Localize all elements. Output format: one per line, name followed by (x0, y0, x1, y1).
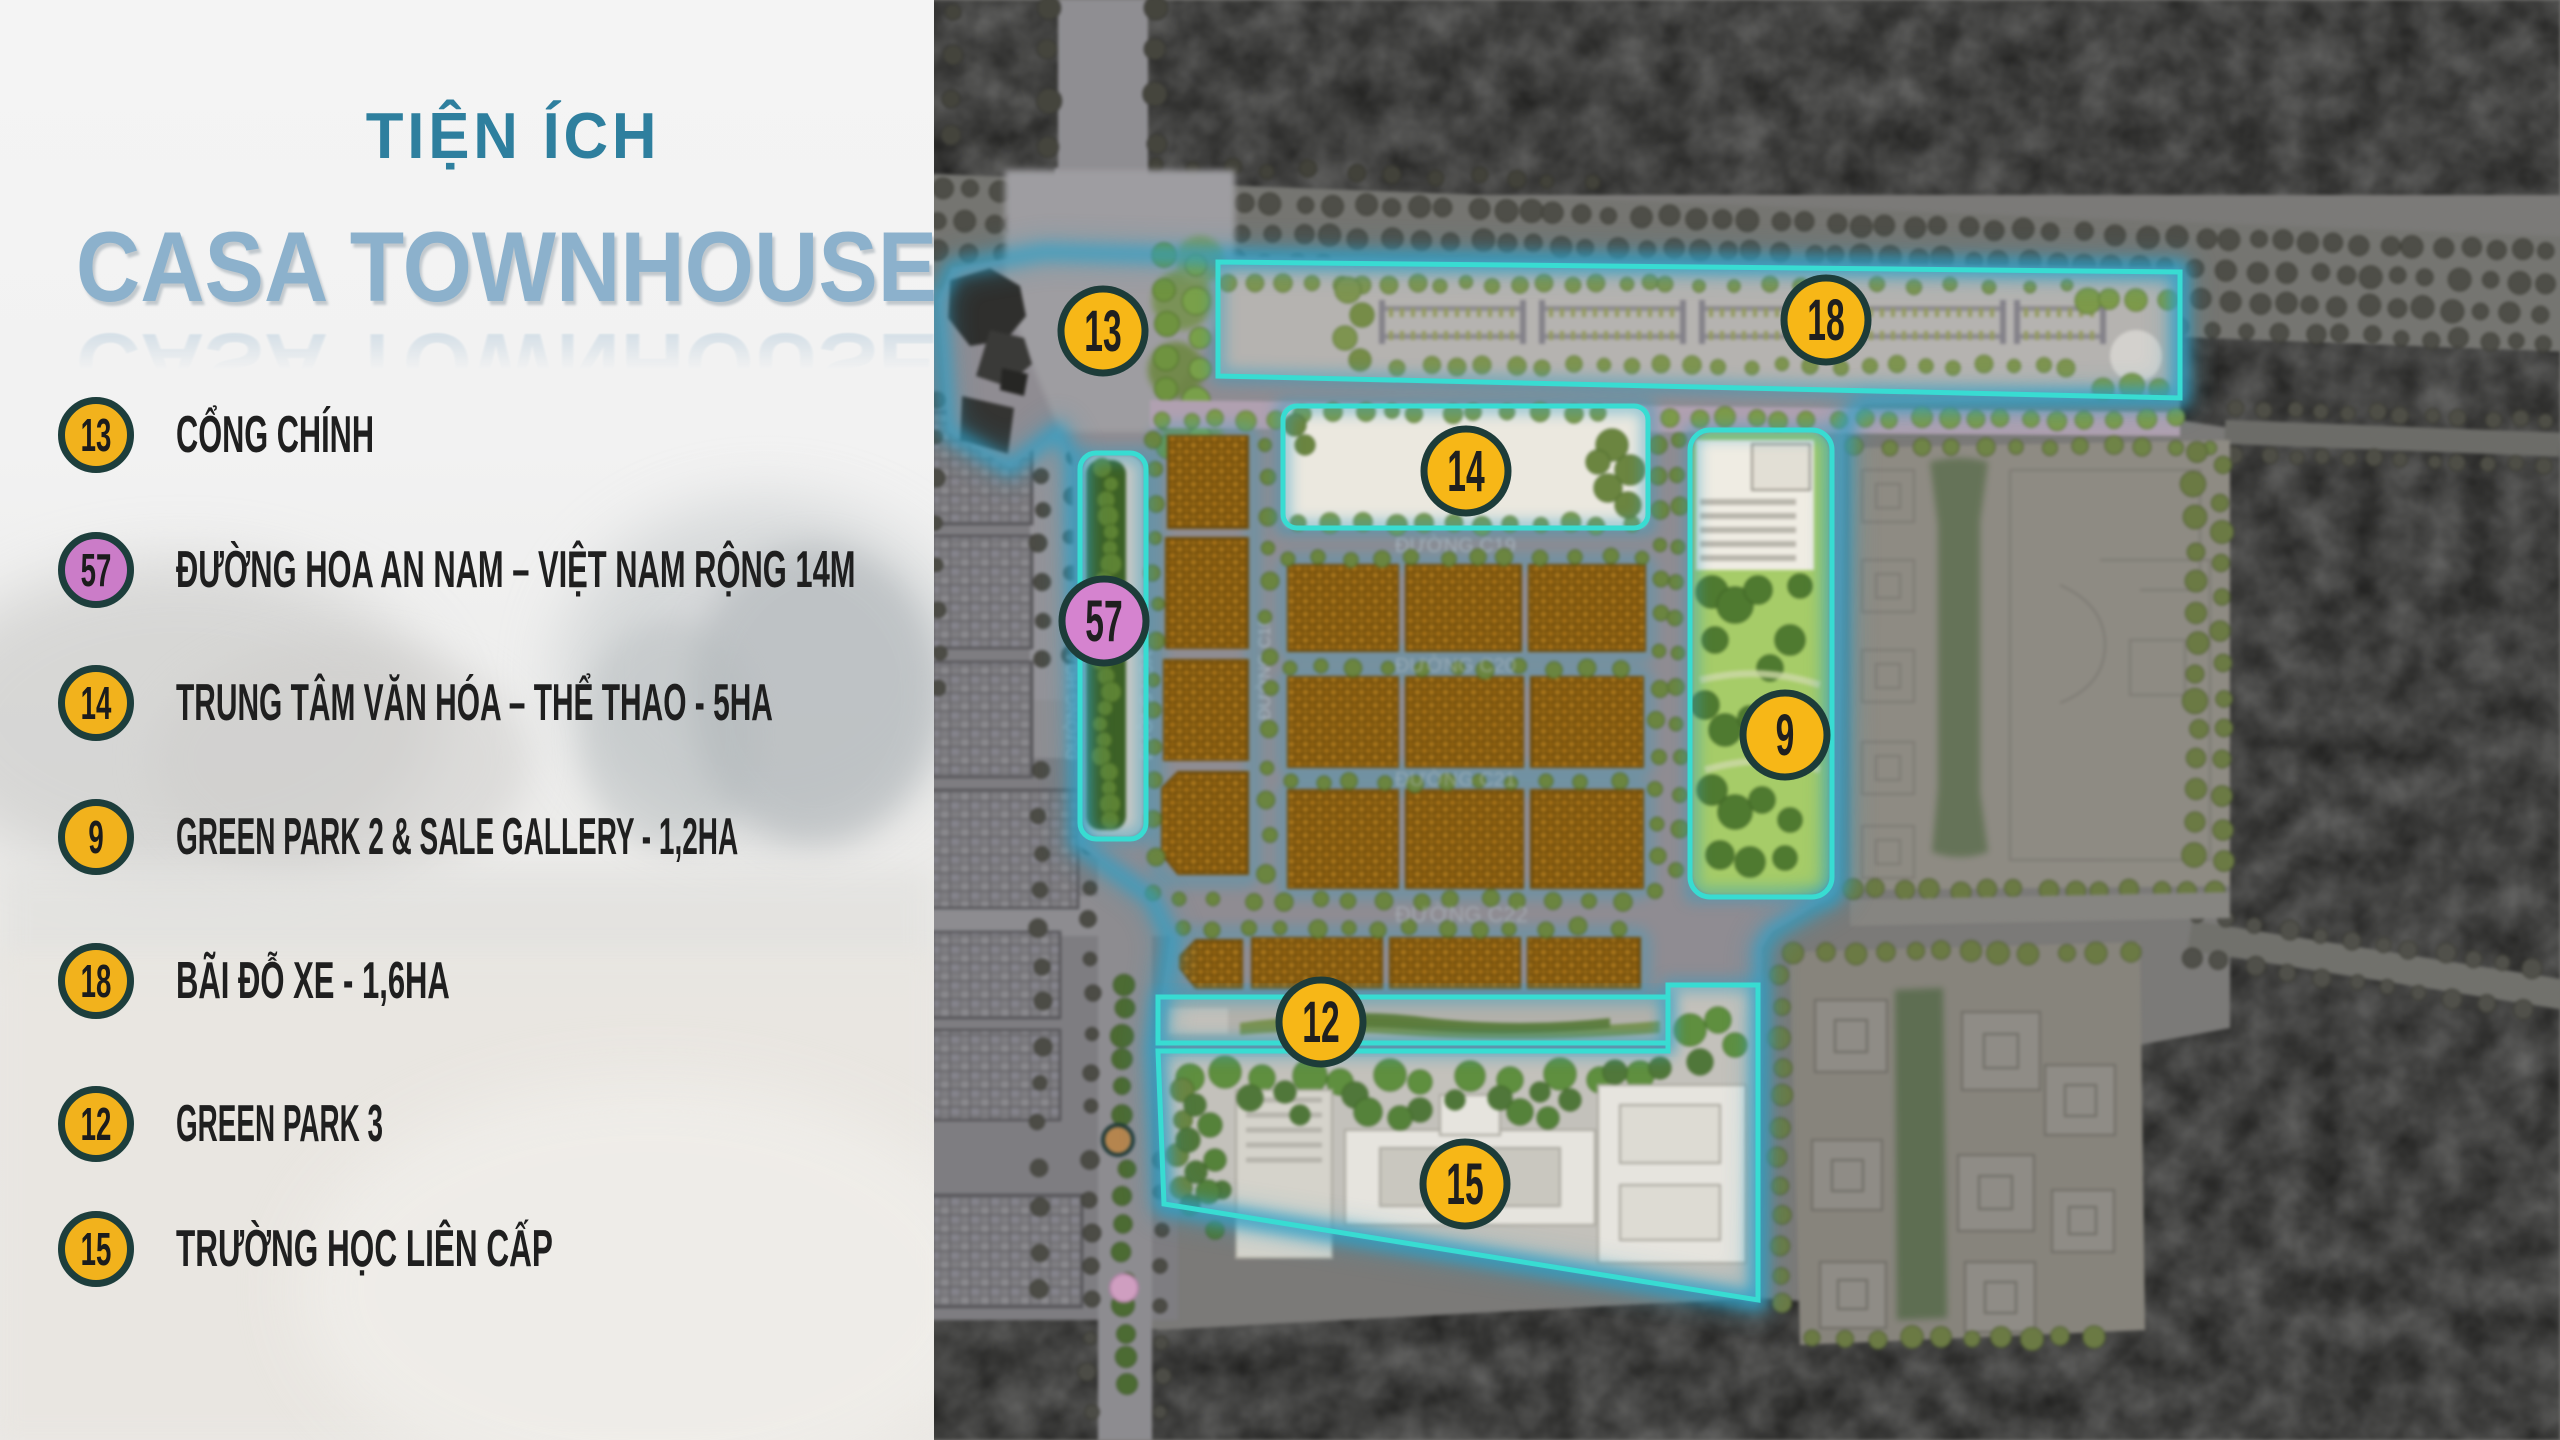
svg-text:ĐƯỜNG C20: ĐƯỜNG C20 (1395, 654, 1516, 677)
svg-text:ĐƯỜNG C21: ĐƯỜNG C21 (1395, 768, 1516, 791)
svg-text:57: 57 (1085, 590, 1122, 655)
svg-text:14: 14 (1447, 440, 1485, 505)
svg-text:12: 12 (1302, 991, 1339, 1056)
svg-text:ĐƯỜNG C22: ĐƯỜNG C22 (1395, 902, 1528, 927)
svg-text:15: 15 (1446, 1153, 1483, 1218)
svg-text:18: 18 (1807, 289, 1844, 354)
svg-text:13: 13 (1084, 300, 1121, 365)
svg-text:9: 9 (1776, 704, 1795, 769)
